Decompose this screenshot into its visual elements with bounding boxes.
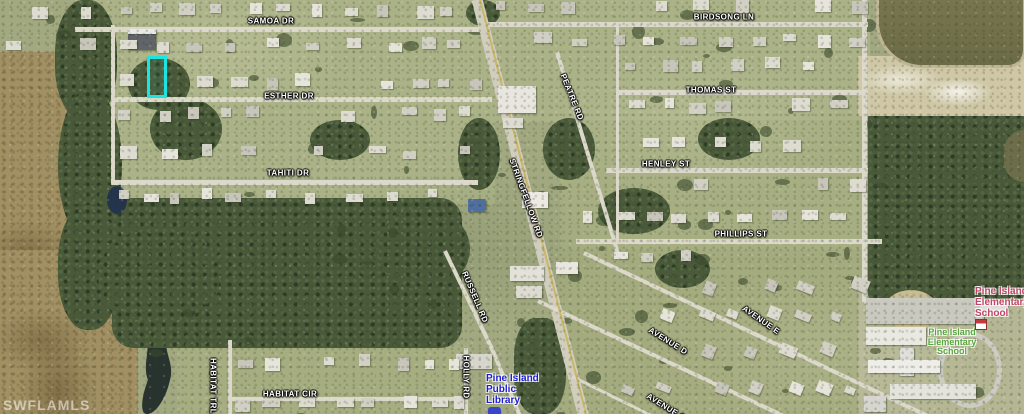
tree-canopy <box>315 67 322 71</box>
building-roof <box>498 86 536 113</box>
building-roof <box>402 107 417 114</box>
building-roof <box>188 107 199 119</box>
tree-canopy <box>183 309 196 317</box>
street-label-esther-dr: ESTHER DR <box>264 92 314 101</box>
building-roof <box>341 111 355 123</box>
building-roof <box>345 8 358 16</box>
building-roof <box>818 35 831 48</box>
building-roof <box>337 398 354 407</box>
building-roof <box>866 298 984 324</box>
building-roof <box>81 7 91 20</box>
building-roof <box>614 35 625 45</box>
building-roof <box>516 286 542 298</box>
tree-canopy <box>498 173 506 177</box>
building-roof <box>815 0 831 12</box>
tree-canopy <box>695 254 710 265</box>
building-roof <box>849 38 865 47</box>
building-roof <box>306 43 319 50</box>
poi-label-line: Public <box>486 385 539 396</box>
building-roof <box>772 210 787 220</box>
building-roof <box>324 357 333 365</box>
building-roof <box>241 146 256 156</box>
building-roof <box>802 210 818 220</box>
building-roof <box>404 396 417 408</box>
poi-label-line: Library <box>486 396 539 407</box>
tree-canopy <box>867 120 872 129</box>
building-roof <box>656 1 667 11</box>
road-segment <box>111 25 115 185</box>
building-roof <box>121 7 132 14</box>
aerial-map: SWFLAMLS SAMOA DRBIRDSONG LNESTHER DRTHO… <box>0 0 1024 414</box>
building-roof <box>314 146 323 155</box>
building-roof <box>299 397 314 407</box>
poi-label-pine-island-elementary-school-poi: Pine IslandElementarySchool <box>975 287 1024 319</box>
tree-canopy <box>826 252 838 257</box>
building-roof <box>647 212 663 222</box>
building-roof <box>719 37 733 47</box>
building-roof <box>693 0 709 10</box>
school-icon <box>975 319 987 330</box>
building-roof <box>80 38 96 50</box>
building-roof <box>120 146 136 158</box>
building-roof <box>572 39 587 46</box>
building-roof <box>681 250 692 261</box>
tree-canopy <box>844 247 850 261</box>
tree-canopy <box>873 183 889 188</box>
building-roof <box>447 40 460 48</box>
building-roof <box>868 360 940 373</box>
building-roof <box>850 179 866 192</box>
building-roof <box>267 78 278 90</box>
building-roof <box>225 43 235 52</box>
poi-label-pine-island-public-library: Pine IslandPublicLibrary <box>486 374 539 406</box>
poi-label-line: School <box>975 309 1024 320</box>
building-roof <box>428 189 437 197</box>
tree-canopy <box>775 179 790 185</box>
watermark: SWFLAMLS <box>3 397 90 413</box>
road-segment <box>228 340 232 414</box>
building-roof <box>202 144 212 156</box>
tree-canopy <box>430 299 437 309</box>
retention-pond <box>876 0 1024 68</box>
tree-canopy <box>635 310 649 323</box>
street-label-tahiti-dr: TAHITI DR <box>267 169 310 178</box>
building-roof <box>381 81 393 89</box>
building-roof <box>470 79 482 89</box>
building-roof <box>689 103 706 115</box>
building-roof <box>417 6 434 19</box>
building-roof <box>665 98 674 107</box>
building-roof <box>663 60 678 72</box>
building-roof <box>830 100 847 107</box>
building-roof <box>671 214 685 224</box>
building-roof <box>276 4 290 11</box>
building-roof <box>783 34 796 41</box>
building-roof <box>792 98 810 111</box>
building-roof <box>736 0 748 13</box>
building-roof <box>680 37 697 45</box>
building-roof <box>432 399 448 407</box>
building-roof <box>619 212 635 220</box>
building-roof <box>387 192 399 201</box>
street-label-henley-st: HENLEY ST <box>642 160 690 169</box>
building-roof <box>434 109 446 121</box>
building-roof <box>262 400 279 407</box>
building-roof <box>295 73 310 86</box>
building-roof <box>765 57 780 68</box>
tree-canopy <box>371 106 377 119</box>
tree-canopy <box>551 186 567 190</box>
tree-canopy <box>56 30 72 40</box>
road-segment <box>618 90 868 95</box>
building-roof <box>231 77 248 87</box>
building-roof <box>312 4 322 17</box>
building-roof <box>753 37 766 46</box>
building-roof <box>238 360 253 367</box>
building-roof <box>438 79 449 87</box>
building-roof <box>120 40 137 50</box>
building-roof <box>459 106 470 115</box>
tree-canopy <box>363 261 373 265</box>
terrain-patch <box>178 345 470 414</box>
building-roof <box>737 214 752 222</box>
building-roof <box>731 59 744 72</box>
street-label-phillips-st: PHILLIPS ST <box>715 230 768 239</box>
building-roof <box>583 211 593 223</box>
building-roof <box>422 37 436 49</box>
building-roof <box>160 111 171 122</box>
building-roof <box>347 38 361 48</box>
building-roof <box>413 79 429 89</box>
building-roof <box>346 194 363 203</box>
building-roof <box>643 138 659 148</box>
road-segment <box>606 168 868 173</box>
building-roof <box>783 140 801 151</box>
building-roof <box>398 358 410 371</box>
building-roof <box>625 63 635 70</box>
building-roof <box>890 384 976 399</box>
tree-canopy <box>663 303 678 308</box>
building-roof <box>221 108 232 117</box>
building-roof <box>818 178 828 190</box>
tree-canopy <box>870 348 880 355</box>
building-roof <box>830 213 846 220</box>
forest-block <box>868 110 1024 302</box>
tree-canopy <box>245 337 253 345</box>
tree-canopy <box>190 292 196 298</box>
tree-canopy <box>619 328 635 336</box>
road-segment <box>112 180 478 185</box>
building-roof <box>866 327 926 345</box>
building-roof <box>692 61 702 72</box>
building-roof <box>468 199 486 212</box>
building-roof <box>150 3 162 12</box>
forest-block <box>698 118 760 160</box>
building-roof <box>162 149 178 159</box>
building-roof <box>265 358 281 371</box>
building-roof <box>170 193 179 204</box>
building-roof <box>614 252 628 259</box>
building-roof <box>708 212 718 222</box>
building-roof <box>361 398 374 407</box>
forest-block <box>98 228 220 323</box>
building-roof <box>250 3 262 14</box>
building-roof <box>235 400 250 412</box>
building-roof <box>510 266 544 281</box>
street-label-habitat-cir: HABITAT CIR <box>263 390 317 399</box>
building-roof <box>6 41 21 50</box>
tree-canopy <box>586 371 601 383</box>
building-roof <box>128 29 156 34</box>
tree-canopy <box>337 224 345 238</box>
building-roof <box>672 137 685 147</box>
tree-canopy <box>149 349 163 356</box>
building-roof <box>556 262 578 274</box>
building-roof <box>225 193 241 201</box>
building-roof <box>641 253 652 262</box>
building-roof <box>197 76 213 87</box>
building-roof <box>369 146 386 153</box>
building-roof <box>803 62 814 70</box>
building-roof <box>186 43 203 52</box>
building-roof <box>715 137 727 147</box>
building-roof <box>119 190 129 199</box>
poi-label-pine-island-elementary-school-campus: Pine IslandElementarySchool <box>928 328 977 357</box>
building-roof <box>643 37 654 45</box>
building-roof <box>266 190 277 198</box>
building-roof <box>528 4 544 13</box>
street-label-habitat-trl: HABITAT TRL <box>209 358 218 414</box>
building-roof <box>210 4 221 13</box>
street-label-birdsong-ln: BIRDSONG LN <box>694 13 754 22</box>
building-roof <box>425 360 434 368</box>
building-roof <box>157 42 170 53</box>
road-segment <box>616 22 619 241</box>
building-roof <box>750 141 762 151</box>
road-segment <box>488 22 868 27</box>
street-label-thomas-st: THOMAS ST <box>686 86 737 95</box>
building-roof <box>460 146 470 154</box>
building-roof <box>534 32 552 42</box>
building-roof <box>694 179 708 190</box>
building-roof <box>377 5 388 16</box>
building-roof <box>202 188 212 200</box>
building-roof <box>503 118 523 128</box>
building-roof <box>561 2 575 14</box>
street-label-samoa-dr: SAMOA DR <box>248 17 294 26</box>
building-roof <box>449 359 460 370</box>
building-roof <box>267 38 279 46</box>
tree-canopy <box>650 96 663 103</box>
building-roof <box>359 354 370 367</box>
building-roof <box>120 74 134 85</box>
library-icon <box>488 407 501 414</box>
building-roof <box>852 1 868 14</box>
building-roof <box>118 110 130 120</box>
building-roof <box>864 396 886 412</box>
building-roof <box>305 193 316 204</box>
building-roof <box>246 106 259 117</box>
building-roof <box>389 43 402 52</box>
poi-label-line: School <box>928 347 977 357</box>
building-roof <box>715 101 731 113</box>
building-roof <box>144 194 159 202</box>
building-roof <box>32 7 47 19</box>
building-roof <box>403 151 416 159</box>
building-roof <box>440 7 452 16</box>
tree-canopy <box>244 192 254 197</box>
subject-property-highlight <box>147 56 167 98</box>
tree-canopy <box>403 41 419 51</box>
tree-canopy <box>390 284 400 294</box>
poi-label-line: Elementary <box>975 298 1024 309</box>
building-roof <box>629 100 645 108</box>
street-label-holly-rd: HOLLY RD <box>462 355 471 398</box>
building-roof <box>179 3 195 15</box>
road-segment <box>576 239 882 244</box>
building-roof <box>496 1 505 9</box>
